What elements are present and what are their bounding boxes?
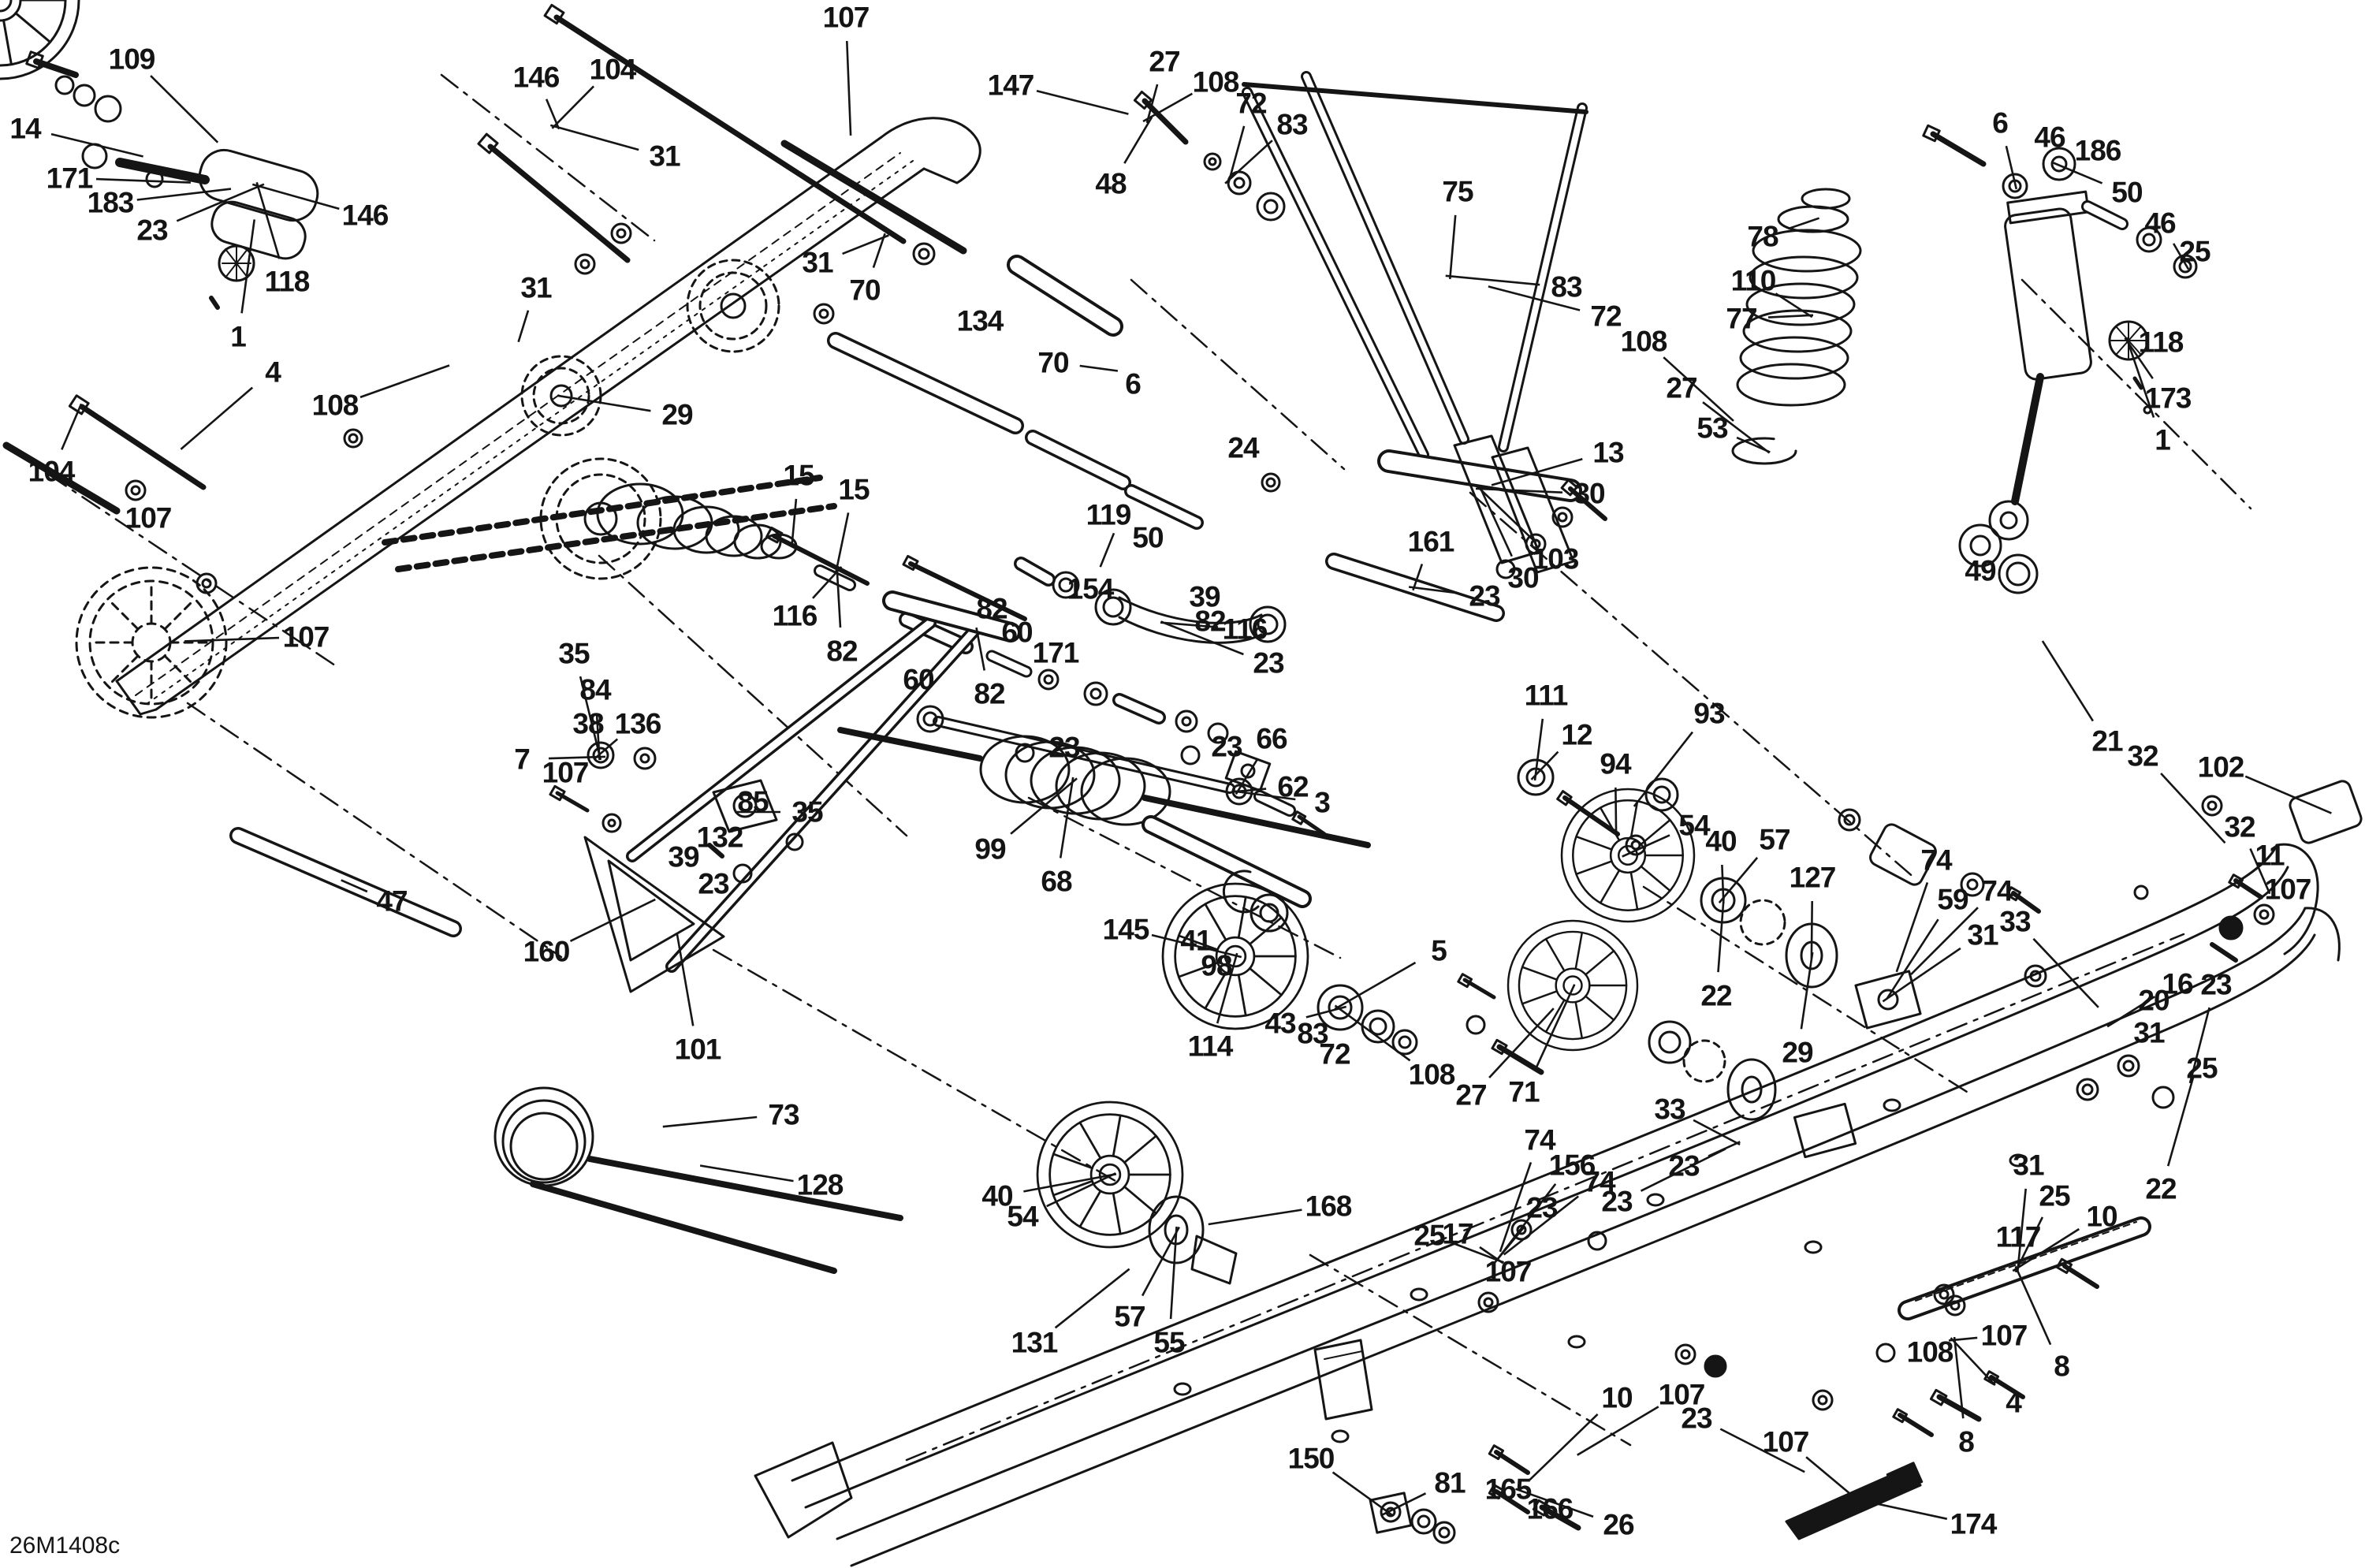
part-callout: 114 (1188, 1032, 1233, 1061)
part-callout: 8 (1958, 1428, 1974, 1457)
part-callout: 94 (1600, 750, 1630, 779)
leader-line (1897, 882, 1927, 971)
part-callout: 72 (1319, 1040, 1350, 1069)
leader-line (550, 125, 639, 150)
part-callout: 117 (1996, 1223, 2041, 1252)
part-callout: 31 (802, 248, 832, 277)
leader-line (546, 99, 559, 129)
part-callout: 59 (1937, 885, 1968, 914)
leader-line (571, 899, 656, 941)
part-callout: 57 (1114, 1302, 1145, 1331)
part-callout: 33 (1654, 1095, 1685, 1124)
part-callout: 107 (283, 623, 330, 652)
part-callout: 4 (2006, 1388, 2021, 1417)
leader-line (2107, 1012, 2131, 1026)
part-callout: 54 (1007, 1202, 1037, 1231)
part-callout: 25 (2186, 1054, 2217, 1083)
part-callout: 23 (1601, 1187, 1632, 1216)
part-callout: 107 (542, 758, 589, 788)
part-callout: 107 (1763, 1428, 1809, 1457)
part-callout: 38 (572, 710, 603, 739)
leader-line (1806, 1457, 1857, 1499)
part-callout: 72 (1590, 302, 1621, 331)
leader-line (181, 388, 252, 449)
part-callout: 161 (1408, 527, 1454, 557)
part-callout: 27 (1666, 374, 1696, 403)
leader-line (1532, 752, 1559, 780)
part-callout: 47 (376, 887, 407, 916)
part-callout: 23 (2200, 970, 2231, 1000)
part-callout: 50 (1132, 523, 1163, 553)
part-callout: 12 (1561, 721, 1592, 750)
part-callout: 23 (698, 870, 728, 899)
part-callout: 57 (1759, 825, 1790, 855)
part-callout: 174 (1950, 1510, 1997, 1539)
leader-line (1101, 533, 1114, 567)
part-callout: 30 (1574, 479, 1604, 508)
part-callout: 75 (1442, 177, 1473, 207)
leader-line (184, 638, 279, 641)
leader-line (1529, 1414, 1597, 1480)
leader-line (137, 189, 231, 200)
part-callout: 183 (88, 188, 134, 218)
part-callout: 108 (1193, 68, 1239, 97)
part-callout: 32 (2127, 742, 2158, 771)
leader-line (257, 182, 280, 259)
part-callout: 101 (675, 1035, 721, 1064)
part-callout: 46 (2144, 209, 2175, 238)
leader-line (51, 134, 143, 156)
leader-line (873, 233, 885, 267)
leader-line (1142, 1227, 1179, 1296)
part-callout: 108 (1907, 1338, 1953, 1367)
leader-line (1209, 1210, 1302, 1224)
part-callout: 13 (1592, 438, 1623, 467)
part-callout: 127 (1790, 863, 1836, 892)
leader-line (519, 311, 528, 342)
leader-line (2161, 773, 2225, 843)
part-callout: 53 (1696, 414, 1727, 443)
part-callout: 8 (2054, 1352, 2069, 1381)
part-callout: 186 (2075, 136, 2121, 166)
part-callout: 31 (2013, 1151, 2043, 1180)
part-callout: 23 (1048, 733, 1079, 762)
leader-line (2245, 777, 2331, 814)
leader-line (1335, 963, 1415, 1009)
part-callout: 103 (1533, 545, 1579, 574)
part-callout: 29 (661, 400, 692, 430)
part-callout: 27 (1455, 1081, 1486, 1110)
leader-line (1450, 215, 1455, 279)
part-callout: 31 (649, 142, 680, 171)
part-callout: 22 (2145, 1175, 2176, 1204)
part-callout: 71 (1508, 1078, 1539, 1107)
leader-line (1489, 1008, 1554, 1078)
part-callout: 6 (1125, 370, 1141, 399)
part-callout: 62 (1277, 773, 1308, 802)
leader-line (663, 1117, 757, 1127)
leader-line (791, 499, 796, 547)
leader-line (96, 179, 191, 183)
part-callout: 116 (773, 602, 818, 631)
part-callout: 165 (1485, 1475, 1532, 1504)
part-callout: 4 (265, 358, 281, 387)
part-callout: 73 (768, 1101, 799, 1130)
part-callout: 171 (47, 164, 93, 193)
leader-line (2043, 641, 2093, 721)
part-callout: 31 (2133, 1019, 2164, 1048)
leader-line (1535, 719, 1543, 780)
part-callout: 119 (1086, 501, 1131, 530)
part-callout: 154 (1067, 575, 1114, 604)
part-callout: 82 (1194, 607, 1225, 636)
leader-line (1236, 759, 1258, 795)
part-callout: 107 (125, 504, 172, 533)
leader-line (843, 236, 889, 254)
part-callout: 11 (2255, 841, 2284, 870)
leader-line (177, 184, 264, 222)
part-callout: 3 (1314, 788, 1330, 818)
leader-line (977, 628, 985, 670)
part-callout: 132 (697, 823, 743, 852)
part-callout: 27 (1149, 47, 1179, 76)
leader-line (1737, 438, 1770, 453)
leader-line (1228, 126, 1244, 184)
part-callout: 26 (1603, 1510, 1633, 1540)
leader-line (594, 739, 617, 759)
part-callout: 168 (1305, 1192, 1352, 1221)
part-callout: 25 (1413, 1221, 1444, 1250)
leader-line (1788, 218, 1819, 229)
leader-line (1147, 84, 1157, 123)
part-callout: 84 (579, 676, 610, 705)
part-callout: 6 (1992, 109, 2008, 138)
leader-line (1693, 1120, 1740, 1145)
leader-line (1023, 1174, 1116, 1191)
part-callout: 35 (558, 639, 589, 669)
part-callout: 173 (2145, 384, 2192, 413)
part-callout: 134 (957, 307, 1004, 336)
leader-line (1812, 901, 1812, 959)
part-callout: 70 (1037, 348, 1068, 378)
part-callout: 23 (1681, 1404, 1711, 1433)
leader-line (1801, 952, 1812, 1029)
part-callout: 16 (2162, 970, 2192, 999)
part-callout: 15 (838, 475, 869, 505)
leader-line (1306, 1007, 1346, 1017)
part-callout: 55 (1153, 1328, 1184, 1358)
part-callout: 146 (342, 201, 389, 230)
leader-line (1722, 865, 1723, 903)
leader-line (1954, 1337, 1963, 1418)
leader-line (61, 404, 81, 449)
leader-line (2006, 146, 2017, 189)
part-callout: 1 (2155, 426, 2170, 455)
leader-line (1622, 835, 1670, 856)
leader-line (1768, 315, 1813, 318)
leader-line (1719, 858, 1757, 903)
part-callout: 109 (109, 45, 155, 74)
leader-line (1446, 276, 1540, 285)
part-callout: 85 (737, 788, 768, 817)
leader-line (1060, 777, 1073, 858)
part-callout: 5 (1431, 937, 1447, 966)
leader-line (360, 366, 449, 397)
part-callout: 150 (1288, 1444, 1335, 1473)
part-callout: 82 (826, 637, 857, 666)
part-callout: 102 (2198, 753, 2244, 782)
part-callout: 104 (590, 55, 636, 84)
leader-line (1413, 564, 1422, 590)
leader-line (151, 76, 218, 143)
leader-line (1480, 486, 1512, 556)
part-callout: 107 (1981, 1321, 2028, 1350)
leader-line (1011, 778, 1077, 833)
part-callout: 48 (1095, 169, 1126, 199)
leader-line (341, 880, 367, 892)
part-callout: 160 (523, 937, 570, 966)
part-callout: 25 (2179, 237, 2210, 266)
part-callout: 29 (1782, 1038, 1812, 1067)
leader-line (1225, 140, 1272, 184)
part-callout: 108 (1409, 1060, 1455, 1089)
leader-line (1887, 919, 1939, 999)
part-callout: 23 (1211, 732, 1242, 762)
drawing-code: 26M1408c (9, 1533, 120, 1559)
leader-line (252, 184, 339, 209)
leader-line (1080, 366, 1118, 371)
part-callout: 31 (520, 274, 551, 303)
part-callout: 43 (1264, 1009, 1295, 1038)
part-callout: 40 (1705, 827, 1736, 856)
part-callout: 166 (1527, 1495, 1574, 1524)
leader-line (1171, 1227, 1176, 1319)
part-callout: 66 (1256, 724, 1287, 754)
part-callout: 21 (2091, 727, 2122, 756)
part-callout: 1 (230, 322, 246, 352)
leader-line (1409, 587, 1458, 594)
part-callout: 108 (312, 391, 359, 420)
part-callout: 118 (2139, 328, 2184, 357)
part-callout: 74 (1920, 846, 1951, 875)
part-callout: 68 (1041, 867, 1071, 896)
part-callout: 81 (1434, 1469, 1465, 1498)
part-callout: 30 (1507, 564, 1538, 593)
part-callout: 23 (1469, 582, 1499, 611)
part-callout: 15 (783, 461, 814, 490)
part-callout: 50 (2111, 178, 2142, 207)
leader-line (1615, 788, 1616, 835)
part-callout: 32 (2224, 813, 2255, 842)
leader-line (1476, 489, 1562, 493)
leader-line (1634, 732, 1693, 806)
leader-line (1333, 1473, 1393, 1516)
leader-line (677, 933, 694, 1026)
part-callout: 25 (2039, 1182, 2069, 1211)
part-callout: 107 (1485, 1257, 1532, 1287)
part-callout: 128 (797, 1171, 844, 1200)
part-callout: 22 (1700, 981, 1731, 1011)
leader-line (836, 512, 848, 572)
part-callout: 171 (1033, 639, 1079, 668)
leader-line (557, 396, 650, 411)
leader-line (1037, 91, 1128, 114)
part-callout: 17 (1442, 1220, 1473, 1249)
part-callout: 70 (849, 276, 880, 305)
part-callout: 46 (2034, 123, 2065, 152)
part-callout: 23 (1668, 1152, 1699, 1181)
leader-line (2033, 939, 2099, 1007)
part-callout: 60 (903, 665, 933, 695)
part-callout: 110 (1731, 266, 1776, 296)
leader-line (1708, 1142, 1740, 1156)
part-callout: 107 (823, 3, 870, 32)
part-callout: 35 (791, 798, 822, 827)
part-callout: 23 (136, 216, 167, 245)
part-callout: 99 (974, 835, 1005, 864)
leader-line (847, 41, 851, 136)
leader-line (1776, 293, 1812, 317)
part-callout: 77 (1726, 304, 1756, 333)
part-callout: 83 (1276, 110, 1307, 140)
part-callout: 145 (1103, 915, 1149, 944)
leader-line (1143, 94, 1192, 121)
leader-line (1233, 789, 1266, 792)
part-callout: 10 (1601, 1384, 1632, 1413)
part-callout: 10 (2086, 1202, 2117, 1231)
part-callout: 83 (1551, 273, 1581, 302)
part-callout: 78 (1747, 222, 1778, 251)
part-callout: 7 (514, 745, 530, 774)
part-callout: 147 (988, 71, 1034, 100)
part-callout: 104 (28, 457, 75, 486)
part-callout: 33 (1999, 907, 2030, 937)
part-callout: 49 (1965, 557, 1995, 586)
part-callout: 111 (1525, 681, 1568, 710)
part-callout: 24 (1227, 434, 1258, 463)
parts-diagram-page: 1091417118323118141461041071463131104107… (0, 0, 2365, 1568)
part-callout: 23 (1526, 1194, 1557, 1223)
part-callout: 118 (265, 267, 310, 296)
part-callout: 136 (615, 710, 661, 739)
part-callout: 39 (668, 843, 698, 872)
leader-line (2168, 1077, 2193, 1166)
part-callout: 60 (1001, 618, 1032, 647)
leader-line (1577, 1406, 1659, 1454)
leader-line (1124, 117, 1152, 164)
leader-line (1047, 1173, 1116, 1206)
part-callout: 82 (974, 680, 1004, 709)
part-callout: 146 (513, 63, 560, 92)
part-callout: 131 (1011, 1328, 1058, 1358)
leader-line (1855, 1499, 1947, 1518)
part-callout: 14 (9, 114, 40, 143)
leader-line (813, 567, 841, 598)
part-callout: 108 (1621, 327, 1667, 356)
part-callout: 72 (1235, 89, 1266, 118)
part-callout: 116 (1223, 615, 1268, 644)
part-callout: 23 (1253, 649, 1283, 678)
part-callout: 74 (1981, 877, 2012, 906)
leader-line (1492, 459, 1582, 485)
leader-line (837, 566, 841, 628)
part-callout: 98 (1201, 952, 1231, 981)
leader-line (1535, 985, 1574, 1071)
leader-line (1477, 486, 1536, 542)
leader-line (700, 1166, 793, 1182)
leader-line (1883, 948, 1961, 1001)
part-callout: 93 (1693, 699, 1724, 728)
leader-line (1719, 897, 1724, 972)
part-callout: 107 (2265, 875, 2311, 904)
part-callout: 31 (1967, 921, 1998, 950)
leader-line (242, 219, 255, 313)
leader-line (1382, 1493, 1426, 1515)
